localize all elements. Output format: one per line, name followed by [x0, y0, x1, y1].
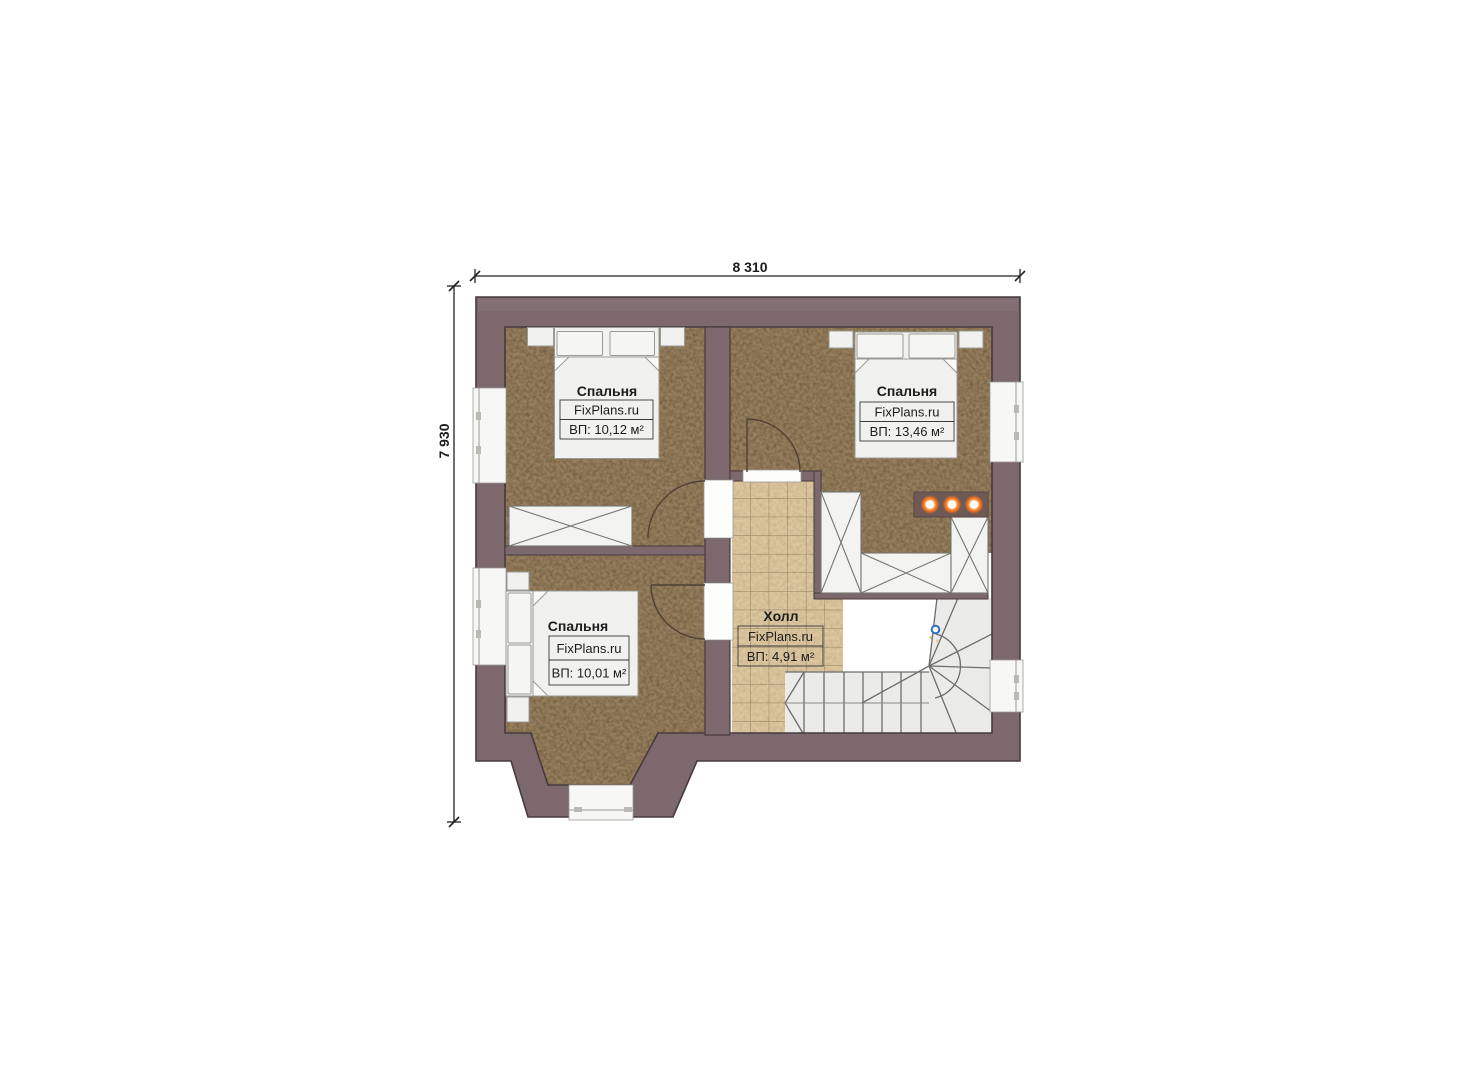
- svg-text:FixPlans.ru: FixPlans.ru: [874, 405, 939, 420]
- svg-text:7 930: 7 930: [436, 423, 452, 458]
- svg-text:FixPlans.ru: FixPlans.ru: [574, 403, 639, 418]
- svg-text:FixPlans.ru: FixPlans.ru: [556, 641, 621, 656]
- svg-text:ВП: 10,01 м²: ВП: 10,01 м²: [552, 666, 627, 681]
- svg-text:8 310: 8 310: [732, 259, 767, 275]
- svg-text:FixPlans.ru: FixPlans.ru: [748, 629, 813, 644]
- svg-text:Спальня: Спальня: [577, 383, 637, 399]
- svg-text:ВП: 10,12 м²: ВП: 10,12 м²: [569, 422, 644, 437]
- svg-text:Спальня: Спальня: [877, 383, 937, 399]
- svg-text:Холл: Холл: [763, 608, 798, 624]
- svg-text:ВП: 4,91 м²: ВП: 4,91 м²: [747, 649, 815, 664]
- svg-text:ВП: 13,46 м²: ВП: 13,46 м²: [870, 424, 945, 439]
- svg-text:Спальня: Спальня: [548, 618, 608, 634]
